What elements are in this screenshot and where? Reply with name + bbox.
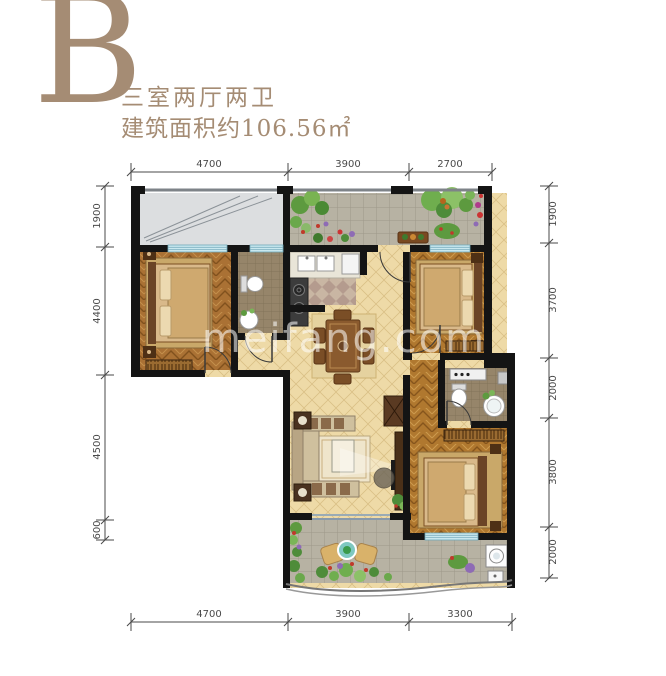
- dim-right-5: 2000: [548, 539, 559, 564]
- dim-bottom-3: 3300: [447, 609, 472, 620]
- dim-right-1: 1900: [548, 201, 559, 226]
- dim-left-2: 4400: [92, 298, 103, 323]
- floor-plan: meifang.com 4700 3900 2700 4700 3900 330…: [0, 0, 666, 676]
- dim-left-3: 4500: [92, 434, 103, 459]
- roof-gray-area: [140, 193, 283, 245]
- kitchen-floor: [308, 278, 356, 305]
- fridge-icon: [342, 254, 359, 274]
- dim-left-4: 600: [92, 520, 103, 539]
- dim-left-1: 1900: [92, 203, 103, 228]
- dim-bottom-2: 3900: [335, 609, 360, 620]
- dim-right-4: 3800: [548, 459, 559, 484]
- window-icon: [250, 245, 283, 252]
- dim-top-2: 3900: [335, 159, 360, 170]
- dim-right-3: 2000: [548, 375, 559, 400]
- window-icon: [168, 245, 227, 252]
- sliding-door-icon: [312, 514, 390, 516]
- wardrobe1-icon: [146, 360, 192, 371]
- window-icon: [430, 245, 470, 252]
- dim-right-2: 3700: [548, 287, 559, 312]
- round-rug-icon: [374, 468, 394, 488]
- window-icon: [425, 533, 478, 540]
- clothes-rack-icon: [444, 430, 504, 441]
- dim-bottom-1: 4700: [196, 609, 221, 620]
- dim-top-3: 2700: [437, 159, 462, 170]
- watermark: meifang.com: [202, 316, 486, 362]
- dim-top-1: 4700: [196, 159, 221, 170]
